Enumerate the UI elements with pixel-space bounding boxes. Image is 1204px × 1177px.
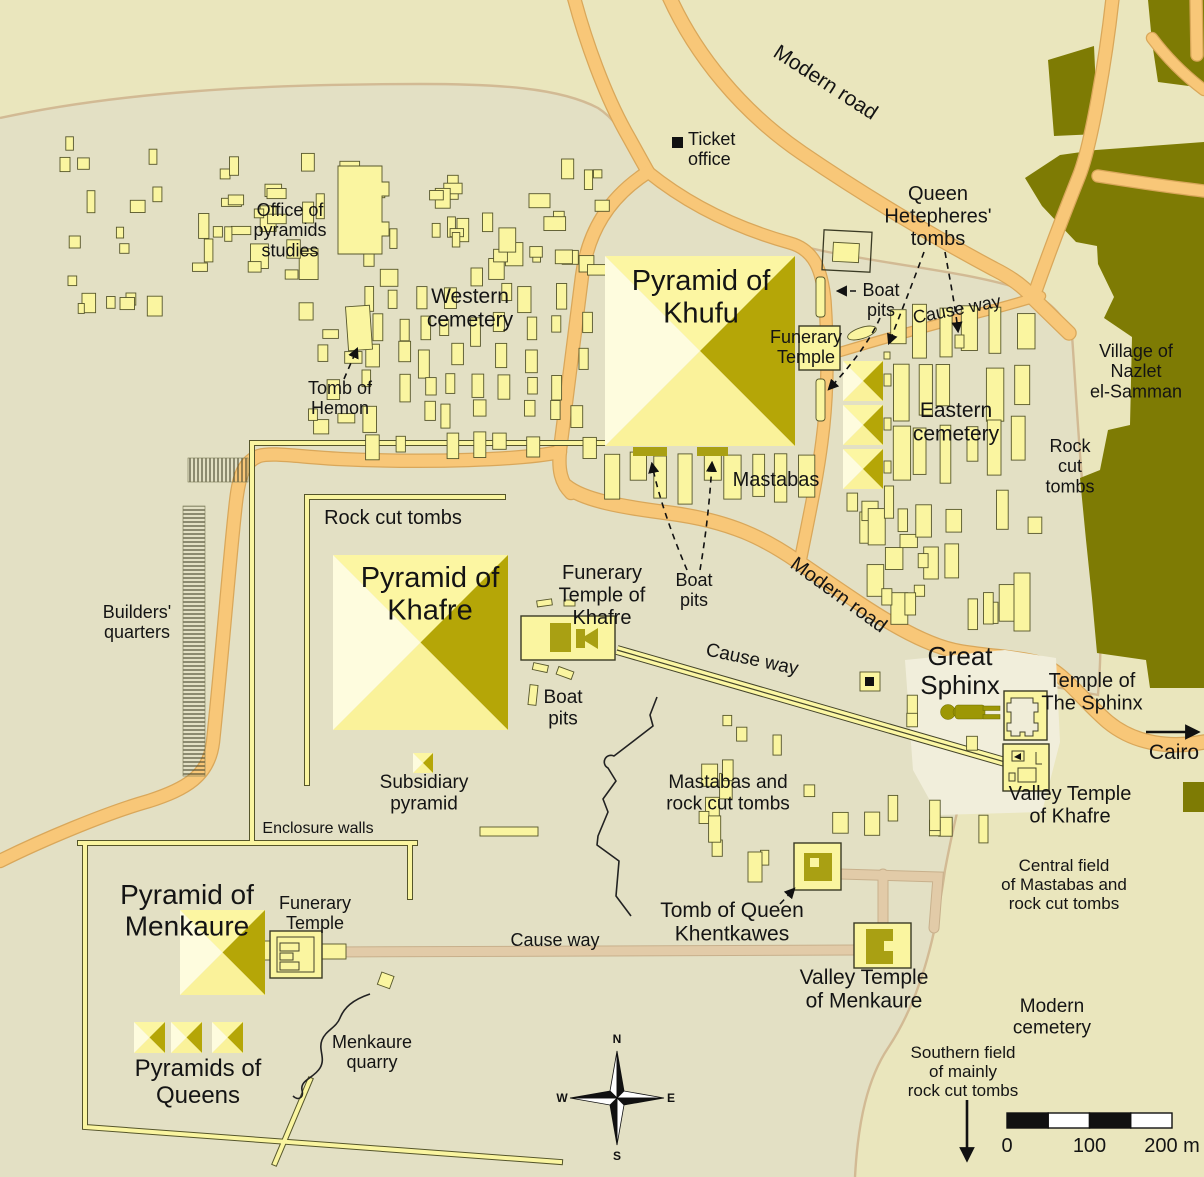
mastaba — [867, 565, 884, 597]
compass-letter-w: W — [556, 1091, 568, 1105]
label-funerary-temple-menkaure: FuneraryTemple — [279, 893, 351, 933]
mastaba — [493, 433, 507, 449]
mastaba — [595, 200, 609, 211]
mastaba — [399, 341, 411, 361]
mastaba — [447, 433, 459, 459]
label-western-cemetery: Westerncemetery — [427, 285, 514, 332]
mastaba — [116, 227, 123, 238]
label-builders-quarters: Builders'quarters — [103, 602, 171, 642]
mastaba — [518, 287, 531, 313]
mastaba — [153, 187, 162, 202]
mastaba — [945, 544, 959, 578]
scale-bar-tick-label: 0 — [1001, 1135, 1012, 1157]
mastaba — [1011, 416, 1025, 460]
hetepheres-tomb-mark — [884, 352, 890, 359]
mastaba — [390, 229, 397, 249]
mastaba — [584, 170, 592, 190]
queen-pyramid-khufu-3 — [843, 449, 883, 489]
monument-marker — [860, 672, 880, 691]
mastaba — [865, 812, 880, 835]
mastaba — [1018, 314, 1036, 349]
small-structure — [748, 852, 762, 882]
mastaba — [967, 736, 978, 750]
mastaba — [989, 307, 1001, 353]
queen-pyramid-khufu-2 — [843, 405, 883, 445]
mastaba — [884, 486, 893, 518]
mastaba — [373, 314, 383, 341]
mastaba — [318, 345, 328, 362]
mastaba — [396, 436, 405, 452]
mastaba — [528, 378, 538, 395]
mastaba — [225, 227, 232, 242]
mastaba — [473, 400, 486, 416]
mastaba — [366, 435, 380, 460]
mastaba — [388, 290, 397, 308]
mastaba — [907, 713, 918, 727]
label-subsidiary-pyramid: Subsidiarypyramid — [380, 772, 469, 814]
mastaba — [248, 262, 261, 273]
mastaba — [654, 456, 667, 498]
mastaba — [918, 554, 928, 568]
mastaba — [898, 509, 907, 532]
mastaba — [905, 593, 916, 615]
mastaba — [380, 269, 398, 286]
scale-bar-tick-label: 100 — [1073, 1135, 1106, 1157]
mastaba — [199, 214, 209, 239]
mastaba — [474, 432, 486, 458]
queen-pyramid-chapel — [884, 418, 891, 430]
tomb-of-hemon-building — [345, 305, 372, 351]
mastaba — [302, 153, 315, 171]
road — [1196, 0, 1197, 55]
scale-bar-segment — [1131, 1113, 1172, 1128]
hetepheres-tomb-mark — [955, 335, 964, 348]
queen-pyramid-menkaure-3 — [212, 1022, 243, 1053]
mastaba — [417, 287, 427, 309]
mastaba — [552, 376, 562, 401]
mastaba — [916, 505, 932, 537]
wall-segment — [480, 827, 538, 836]
mastaba — [400, 374, 410, 402]
mastaba — [120, 244, 129, 254]
mastaba — [204, 239, 213, 262]
label-temple-of-the-sphinx: Temple ofThe Sphinx — [1041, 670, 1142, 714]
mastaba — [529, 194, 550, 208]
subsidiary-pyramid — [413, 753, 433, 773]
mastaba — [571, 406, 583, 428]
mastaba — [583, 437, 596, 458]
mastaba — [471, 268, 483, 286]
label-funerary-temple-khufu: FuneraryTemple — [770, 327, 842, 367]
mastaba — [418, 350, 429, 378]
label-cause-way-menkaure: Cause way — [510, 930, 599, 950]
mastaba — [552, 316, 561, 332]
mastaba — [228, 195, 243, 205]
office-of-pyramids-studies-building — [338, 166, 389, 254]
label-boat-pits-khafre: Boatpits — [543, 687, 583, 729]
ticket-office-marker — [672, 137, 683, 148]
mastaba — [432, 223, 440, 237]
scale-bar-segment — [1090, 1113, 1131, 1128]
label-mastabas: Mastabas — [733, 469, 820, 491]
boat-pit — [528, 685, 538, 706]
valley-temple-of-menkaure-building — [854, 923, 911, 968]
scale-bar-tick-label: 200 m — [1144, 1135, 1200, 1157]
mastaba — [78, 304, 84, 314]
queen-pyramid-menkaure-1 — [134, 1022, 165, 1053]
queen-pyramid-menkaure-2 — [171, 1022, 202, 1053]
mastaba — [557, 284, 567, 310]
label-boat-pits-khufu-south: Boatpits — [675, 570, 712, 610]
mastaba — [773, 735, 781, 755]
label-great-sphinx: GreatSphinx — [920, 641, 1000, 700]
mastaba — [882, 589, 892, 605]
mastaba — [930, 800, 941, 830]
mastaba — [551, 401, 560, 420]
mastaba — [583, 312, 593, 332]
scale-bar-segment — [1048, 1113, 1089, 1128]
label-modern-cemetery: Moderncemetery — [1013, 996, 1092, 1038]
mastaba — [579, 348, 588, 369]
label-tomb-of-queen-khentkawes: Tomb of QueenKhentkawes — [660, 899, 804, 946]
label-enclosure-walls: Enclosure walls — [262, 820, 373, 837]
mastaba — [562, 159, 574, 179]
mastaba — [472, 374, 484, 397]
mastaba — [452, 343, 464, 364]
mastaba — [400, 319, 409, 341]
mastaba — [527, 437, 540, 457]
mastaba — [525, 400, 536, 416]
queen-pyramid-chapel — [884, 461, 891, 473]
mastaba — [193, 263, 208, 271]
mastaba — [526, 350, 538, 373]
mastaba — [69, 236, 80, 248]
mastaba — [544, 217, 566, 231]
mastaba — [530, 247, 543, 258]
mastaba — [499, 228, 516, 252]
mastaba — [230, 157, 239, 176]
mastaba — [555, 250, 572, 264]
mastaba — [594, 170, 602, 178]
mastaba — [723, 715, 732, 725]
label-boat-pits-khufu-ne: Boatpits — [862, 280, 899, 320]
mastaba — [737, 727, 747, 741]
mastaba — [78, 158, 90, 169]
boat-pit-dark — [633, 447, 667, 456]
label-ticket-office: Ticketoffice — [688, 129, 735, 169]
mastaba — [107, 297, 116, 309]
mastaba — [66, 137, 74, 150]
queen-pyramid-chapel — [884, 374, 891, 386]
label-rock-cut-tombs-west: Rock cut tombs — [324, 507, 462, 529]
mastaba — [968, 599, 977, 630]
mastaba — [323, 330, 339, 339]
tomb-of-queen-khentkawes-building — [794, 843, 841, 890]
mastaba — [833, 812, 849, 833]
mastaba — [314, 420, 329, 434]
mastaba — [87, 191, 95, 213]
label-eastern-cemetery: Easterncemetery — [913, 399, 1000, 446]
mastaba — [678, 454, 692, 504]
mastaba — [984, 593, 994, 624]
map-canvas: NESW 0100200 m Modern roadTicketofficeQu… — [0, 0, 1204, 1177]
mastaba — [605, 454, 620, 499]
compass-letter-e: E — [667, 1091, 675, 1105]
label-cairo: Cairo — [1149, 741, 1199, 764]
mastaba — [68, 276, 77, 286]
mastaba — [441, 404, 450, 428]
mastaba — [446, 374, 455, 394]
giza-map: NESW 0100200 m Modern roadTicketofficeQu… — [0, 0, 1204, 1177]
compass-letter-n: N — [613, 1032, 622, 1046]
mastaba — [231, 226, 250, 234]
small-structure — [1014, 573, 1030, 631]
mastaba — [885, 548, 903, 570]
label-tomb-of-hemon: Tomb ofHemon — [308, 378, 373, 418]
mastaba — [893, 426, 910, 480]
mastaba — [997, 490, 1009, 529]
mastaba — [868, 509, 885, 545]
mastaba — [939, 817, 953, 836]
mastaba — [452, 233, 460, 248]
mastaba — [496, 343, 507, 367]
mastaba — [709, 816, 721, 842]
mastaba — [60, 157, 70, 171]
mastaba — [426, 378, 437, 395]
mastaba — [894, 364, 910, 421]
boat-pit — [816, 379, 825, 421]
boat-pit — [816, 277, 825, 317]
mastaba — [946, 509, 962, 532]
mastaba — [285, 270, 298, 279]
mastaba — [1028, 517, 1042, 533]
mastaba — [149, 149, 157, 164]
mastaba — [847, 493, 858, 511]
label-valley-temple-of-menkaure: Valley Templeof Menkaure — [800, 966, 929, 1013]
mastaba — [120, 298, 135, 310]
mastaba — [1015, 365, 1030, 404]
mastaba — [888, 795, 898, 821]
mastaba — [267, 189, 286, 199]
label-central-field: Central fieldof Mastabas androck cut tom… — [1001, 856, 1127, 913]
mastaba — [220, 169, 230, 179]
mastaba — [483, 213, 493, 232]
scale-bar-segment — [1007, 1113, 1048, 1128]
mastaba — [147, 296, 162, 316]
label-mastabas-and-rock-cut-tombs: Mastabas androck cut tombs — [666, 772, 790, 814]
mastaba — [299, 303, 313, 320]
mastaba — [430, 191, 444, 200]
compass-letter-s: S — [613, 1149, 621, 1163]
mastaba — [498, 375, 510, 399]
boat-pit-dark — [697, 447, 728, 456]
mastaba — [630, 452, 646, 480]
mastaba — [213, 227, 222, 238]
mastaba — [804, 785, 815, 797]
label-office-of-pyramids-studies: Office ofpyramidsstudies — [253, 200, 326, 260]
mastaba — [527, 317, 536, 340]
mastaba — [130, 200, 145, 212]
mastaba — [900, 534, 917, 547]
label-pyramid-of-menkaure: Pyramid ofMenkaure — [120, 879, 254, 941]
mastaba — [425, 401, 436, 420]
mastaba — [979, 815, 988, 843]
